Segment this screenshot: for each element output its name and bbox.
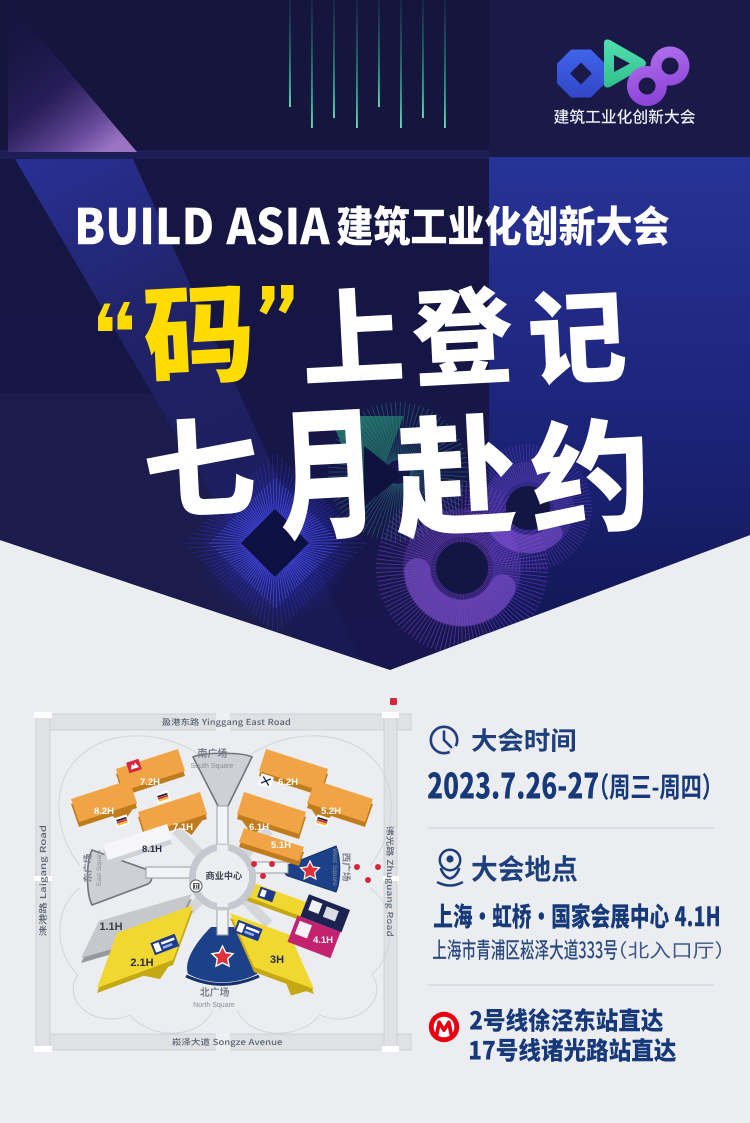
- svg-text:6.2H: 6.2H: [278, 777, 298, 788]
- svg-text:4.1H: 4.1H: [313, 935, 333, 946]
- svg-text:1.1H: 1.1H: [99, 921, 122, 933]
- svg-text:North Square: North Square: [193, 1002, 235, 1009]
- svg-text:8.2H: 8.2H: [94, 806, 114, 817]
- svg-text:West Square: West Square: [331, 848, 338, 886]
- svg-text:5.1H: 5.1H: [271, 840, 291, 851]
- svg-text:East Square: East Square: [96, 850, 103, 886]
- svg-text:7.2H: 7.2H: [140, 777, 160, 788]
- svg-text:3H: 3H: [270, 954, 284, 966]
- svg-text:8.1H: 8.1H: [142, 844, 162, 855]
- svg-text:South Square: South Square: [191, 763, 234, 770]
- svg-text:6.1H: 6.1H: [249, 822, 269, 833]
- svg-text:2.1H: 2.1H: [130, 957, 153, 969]
- svg-text:5.2H: 5.2H: [321, 806, 341, 817]
- svg-text:7.1H: 7.1H: [173, 822, 193, 833]
